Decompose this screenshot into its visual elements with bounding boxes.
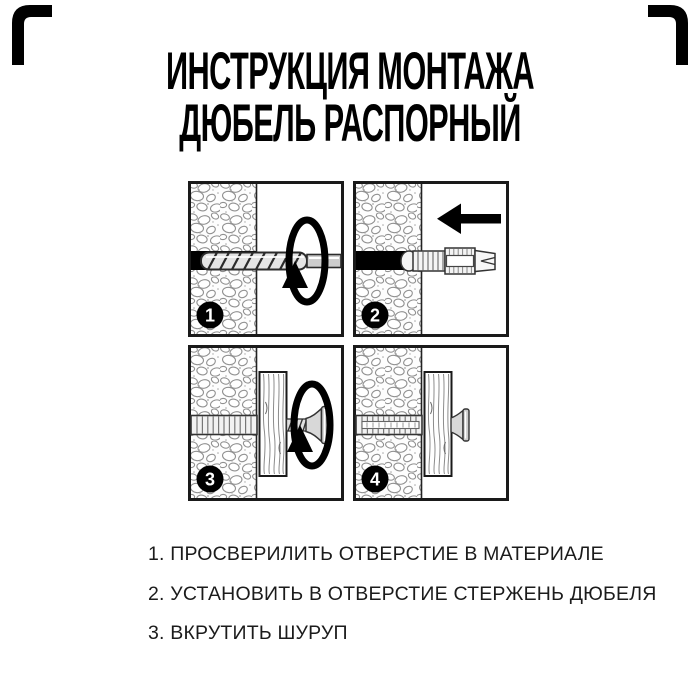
step-text-1: 1. ПРОСВЕРИЛИТЬ ОТВЕРСТИЕ В МАТЕРИАЛЕ bbox=[148, 542, 657, 566]
step-panel-4-done: 4 bbox=[353, 345, 509, 501]
step-number-badge: 1 bbox=[197, 302, 224, 329]
wood-plank-icon bbox=[260, 372, 287, 476]
step-number-4: 4 bbox=[370, 469, 380, 489]
page-title: ИНСТРУКЦИЯ МОНТАЖА ДЮБЕЛЬ РАСПОРНЫЙ bbox=[0, 46, 700, 150]
step-panel-2-insert: 2 bbox=[353, 181, 509, 337]
dowel-icon bbox=[401, 248, 495, 274]
step-panel-3-screw: 3 bbox=[188, 345, 344, 501]
step-list: 1. ПРОСВЕРИЛИТЬ ОТВЕРСТИЕ В МАТЕРИАЛЕ 2.… bbox=[148, 542, 657, 661]
step-number-badge: 2 bbox=[362, 302, 389, 329]
step-number-3: 3 bbox=[205, 469, 215, 489]
step-number-badge: 3 bbox=[197, 466, 224, 493]
step-number-2: 2 bbox=[370, 305, 380, 325]
title-line-2: ДЮБЕЛЬ РАСПОРНЫЙ bbox=[147, 98, 553, 150]
step-number-badge: 4 bbox=[362, 466, 389, 493]
title-line-1: ИНСТРУКЦИЯ МОНТАЖА bbox=[147, 46, 553, 98]
drill-bit-icon bbox=[201, 253, 341, 270]
step-number-1: 1 bbox=[205, 305, 215, 325]
step-panels-grid: 1 bbox=[188, 181, 509, 501]
instruction-sheet: ИНСТРУКЦИЯ МОНТАЖА ДЮБЕЛЬ РАСПОРНЫЙ bbox=[0, 0, 700, 700]
wood-plank-icon bbox=[425, 372, 452, 476]
step-text-3: 3. ВКРУТИТЬ ШУРУП bbox=[148, 621, 657, 645]
step-text-2: 2. УСТАНОВИТЬ В ОТВЕРСТИЕ СТЕРЖЕНЬ ДЮБЕЛ… bbox=[148, 582, 657, 606]
step-panel-1-drill: 1 bbox=[188, 181, 344, 337]
screw-shank-icon bbox=[362, 422, 419, 429]
